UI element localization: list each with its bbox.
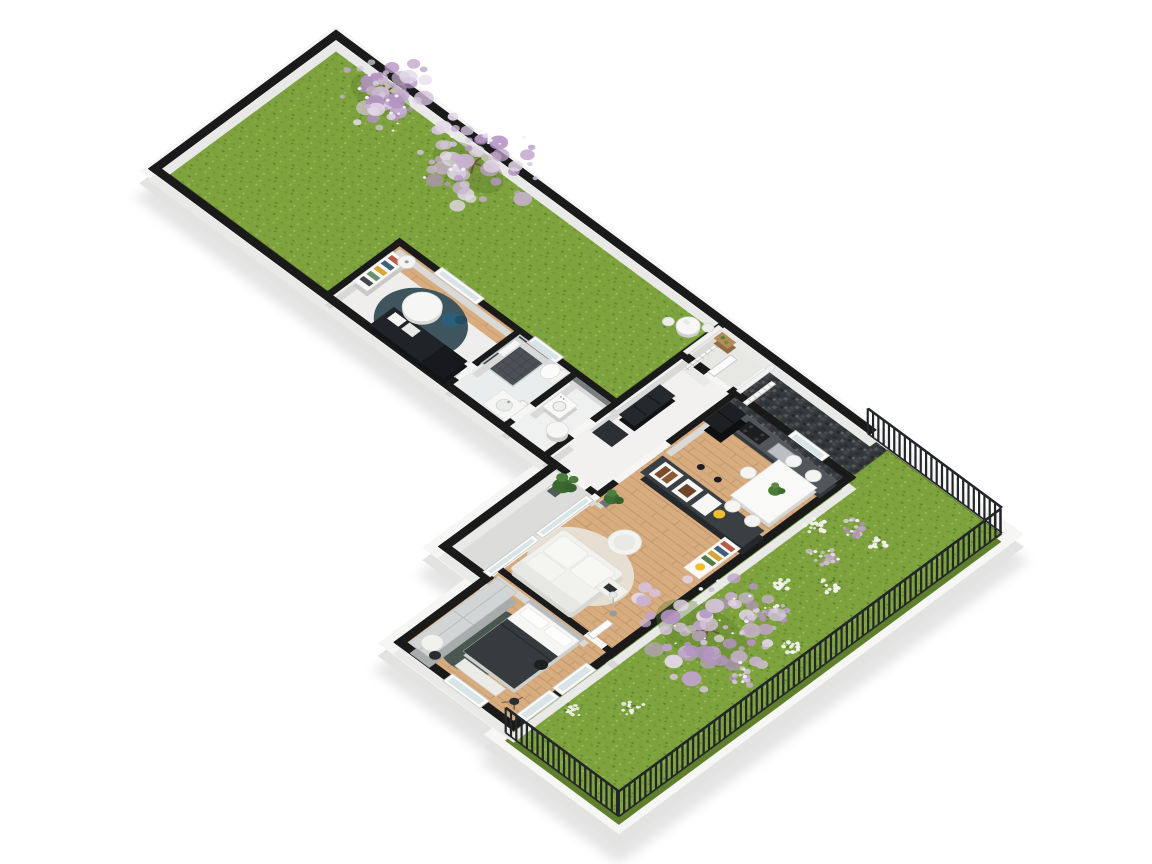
floor-plan-3d-render xyxy=(0,0,1152,864)
blossom-highlight xyxy=(521,135,526,139)
blossom xyxy=(415,73,435,88)
floor-plan-svg xyxy=(0,0,1152,864)
blossom xyxy=(517,147,538,162)
blossom xyxy=(526,161,534,167)
scene-isometric-group xyxy=(0,13,1052,847)
blossom xyxy=(418,65,429,73)
